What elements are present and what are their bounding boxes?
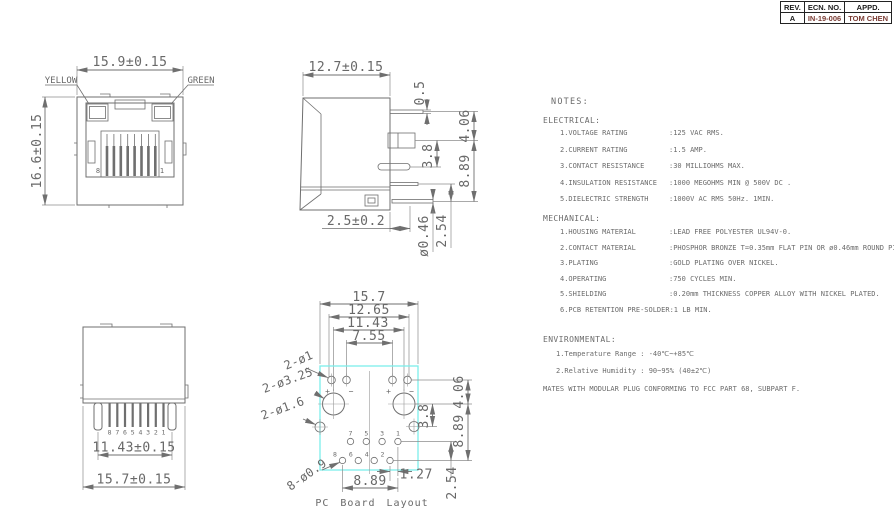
note-item: 5.DIELECTRIC STRENGTH:1000V AC RMS 50Hz.…: [560, 195, 774, 203]
revision-header-row: REV. ECN. NO. APPD.: [781, 2, 892, 13]
note-label: 4.INSULATION RESISTANCE: [560, 179, 669, 187]
side-pin-dia-dim: ø0.46: [417, 215, 432, 257]
side-dim-3-8: 3.8: [421, 144, 436, 169]
notes-title: NOTES:: [551, 97, 589, 107]
note-item: 4.OPERATING:750 CYCLES MIN.: [560, 275, 736, 283]
note-item: 4.INSULATION RESISTANCE:1000 MEGOHMS MIN…: [560, 179, 791, 187]
side-standoff-dim: 2.5±0.2: [327, 214, 385, 229]
pcb-dim-8-89: 8.89: [452, 414, 467, 447]
pcb-leader-pins: 8-ø0.9: [284, 456, 329, 493]
bottom-pin-label: 1: [162, 429, 166, 437]
front-width-dim: 15.9±0.15: [93, 55, 168, 70]
note-value: :1.5 AMP.: [669, 146, 707, 154]
note-item: 5.SHIELDING:0.20mm THICKNESS COPPER ALLO…: [560, 290, 880, 298]
notes-heading-mechanical: MECHANICAL:: [543, 214, 600, 223]
pcb-dim-1-27: 1.27: [400, 468, 433, 483]
bottom-pin-label: 2: [154, 429, 158, 437]
pcb-dim-4-06: 4.06: [452, 375, 467, 408]
side-dim-8-89: 8.89: [458, 154, 473, 187]
note-value: :0.20mm THICKNESS COPPER ALLOY WITH NICK…: [669, 290, 880, 298]
note-label: 2.CONTACT MATERIAL: [560, 244, 669, 252]
notes-footer: MATES WITH MODULAR PLUG CONFORMING TO FC…: [543, 385, 800, 393]
pcb-pin-label: 8: [333, 451, 337, 459]
note-label: 4.OPERATING: [560, 275, 669, 283]
bottom-pin-label: 8: [108, 429, 112, 437]
pcb-pin-label: 7: [349, 430, 353, 438]
appd-value: TOM CHEN: [845, 13, 892, 24]
pcb-pin-label: 5: [364, 430, 368, 438]
pcb-dim-led-inner: 7.55: [352, 329, 385, 344]
pcb-dim-row-span: 8.89: [353, 474, 386, 489]
pcb-dim-3-8: 3.8: [417, 404, 432, 429]
front-pin1-label: 1: [160, 167, 164, 175]
polarity-minus: −: [349, 387, 354, 396]
note-item: 1.HOUSING MATERIAL:LEAD FREE POLYESTER U…: [560, 228, 791, 236]
pcb-leader-lock: 2-ø1.6: [259, 394, 306, 423]
note-item: 6.PCB RETENTION PRE-SOLDER:1 LB MIN.: [560, 306, 712, 314]
front-view: 15.9±0.15 16.6±0.15 YELLOW GREEN 8 1: [30, 55, 215, 208]
led-label-yellow: YELLOW: [45, 76, 78, 86]
note-value: :GOLD PLATING OVER NICKEL.: [669, 259, 779, 267]
bottom-pin-label: 3: [146, 429, 150, 437]
side-pitch-dim: 2.54: [435, 214, 450, 247]
pcb-pin-label: 3: [380, 430, 384, 438]
note-item: 3.CONTACT RESISTANCE:30 MILLIOHMS MAX.: [560, 162, 745, 170]
front-pin8-label: 8: [96, 167, 100, 175]
side-dim-4-06: 4.06: [458, 109, 473, 142]
note-value: :1 LB MIN.: [670, 306, 712, 314]
ecn-value: IN-19-006: [804, 13, 844, 24]
note-item: 2.Relative Humidity : 90~95% (40±2℃): [556, 367, 711, 375]
note-label: 6.PCB RETENTION PRE-SOLDER: [560, 306, 670, 314]
note-item: 3.PLATING:GOLD PLATING OVER NICKEL.: [560, 259, 779, 267]
note-label: 5.DIELECTRIC STRENGTH: [560, 195, 669, 203]
bottom-width-dim: 15.7±0.15: [97, 473, 172, 488]
front-height-dim: 16.6±0.15: [30, 114, 45, 189]
ecn-header: ECN. NO.: [804, 2, 844, 13]
polarity-plus: +: [386, 387, 391, 396]
side-width-dim: 12.7±0.15: [309, 60, 384, 75]
revision-table: REV. ECN. NO. APPD. A IN-19-006 TOM CHEN: [780, 1, 892, 24]
note-label: 3.PLATING: [560, 259, 669, 267]
pcb-pin-label: 1: [396, 430, 400, 438]
note-value: :1000 MEGOHMS MIN @ 500V DC .: [669, 179, 791, 187]
note-value: :125 VAC RMS.: [669, 129, 724, 137]
bottom-pin-label: 4: [138, 429, 142, 437]
pcb-dim-pitch: 2.54: [445, 466, 460, 499]
pcb-pin-label: 6: [349, 451, 353, 459]
note-label: 2.CURRENT RATING: [560, 146, 669, 154]
side-view: 12.7±0.15 0.5 3.8 4.06 8.89 2.5±0.2: [300, 60, 478, 257]
note-label: 1.VOLTAGE RATING: [560, 129, 669, 137]
note-value: :1000V AC RMS 50Hz. 1MIN.: [669, 195, 774, 203]
note-label: 1.HOUSING MATERIAL: [560, 228, 669, 236]
notes-heading-environmental: ENVIRONMENTAL:: [543, 335, 616, 344]
cad-drawing: 15.9±0.15 16.6±0.15 YELLOW GREEN 8 1 12.…: [0, 0, 894, 515]
notes-heading-electrical: ELECTRICAL:: [543, 116, 600, 125]
bottom-view: 8 7 6 5 4 3 2 1 11.43±0.15 15.7±0.15: [80, 324, 188, 490]
side-pin-thickness-dim: 0.5: [413, 81, 428, 106]
pcb-caption: PC Board Layout: [315, 498, 428, 509]
note-value: :PHOSPHOR BRONZE T=0.35mm FLAT PIN OR ø0…: [669, 244, 894, 252]
note-item: 2.CURRENT RATING:1.5 AMP.: [560, 146, 707, 154]
bottom-pin-label: 5: [131, 429, 135, 437]
note-value: :LEAD FREE POLYESTER UL94V-0.: [669, 228, 791, 236]
revision-data-row: A IN-19-006 TOM CHEN: [781, 13, 892, 24]
note-item: 1.Temperature Range : -40℃~+85℃: [556, 350, 694, 358]
pcb-layout: 15.7 12.65 11.43 7.55 + − + − 7 5 3 1 8: [259, 290, 472, 509]
bottom-pin-label: 7: [115, 429, 119, 437]
note-value: :30 MILLIOHMS MAX.: [669, 162, 745, 170]
pcb-pin-label: 2: [381, 451, 385, 459]
note-label: 3.CONTACT RESISTANCE: [560, 162, 669, 170]
note-item: 1.VOLTAGE RATING:125 VAC RMS.: [560, 129, 724, 137]
pcb-pin-label: 4: [365, 451, 369, 459]
rev-value: A: [781, 13, 805, 24]
bottom-span-dim: 11.43±0.15: [92, 441, 175, 456]
note-label: 5.SHIELDING: [560, 290, 669, 298]
bottom-pin-label: 6: [123, 429, 127, 437]
note-value: :750 CYCLES MIN.: [669, 275, 736, 283]
engineering-drawing-sheet: 15.9±0.15 16.6±0.15 YELLOW GREEN 8 1 12.…: [0, 0, 894, 515]
rev-header: REV.: [781, 2, 805, 13]
appd-header: APPD.: [845, 2, 892, 13]
note-item: 2.CONTACT MATERIAL:PHOSPHOR BRONZE T=0.3…: [560, 244, 894, 252]
led-label-green: GREEN: [187, 76, 214, 86]
